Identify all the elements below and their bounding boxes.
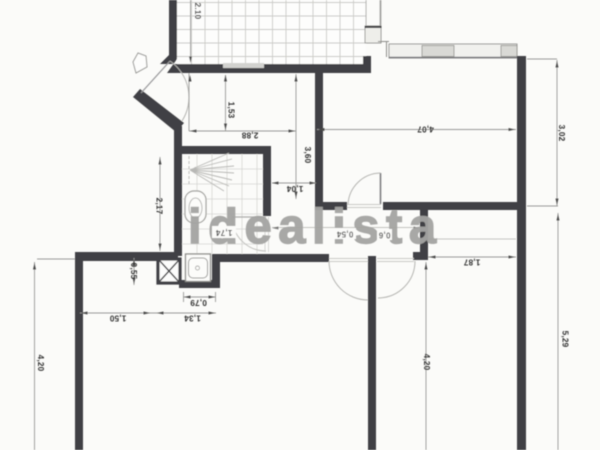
- svg-text:4,20: 4,20: [36, 355, 45, 372]
- svg-text:2,88: 2,88: [241, 131, 258, 140]
- svg-text:3,60: 3,60: [303, 147, 312, 164]
- svg-text:0,54: 0,54: [336, 230, 353, 239]
- svg-text:3,02: 3,02: [557, 125, 566, 142]
- svg-text:1,53: 1,53: [226, 102, 235, 119]
- svg-text:1,50: 1,50: [109, 314, 126, 323]
- svg-text:5,29: 5,29: [560, 331, 569, 348]
- svg-text:0,6: 0,6: [378, 231, 390, 240]
- svg-text:1,34: 1,34: [184, 314, 201, 323]
- svg-text:1,74: 1,74: [215, 228, 232, 237]
- svg-text:1,87: 1,87: [463, 258, 480, 267]
- svg-text:2,17: 2,17: [154, 198, 163, 215]
- svg-text:1,04: 1,04: [286, 184, 303, 193]
- svg-text:4,07: 4,07: [417, 125, 434, 134]
- svg-text:0,79: 0,79: [190, 298, 207, 307]
- svg-text:4,20: 4,20: [422, 354, 431, 371]
- svg-text:0,55: 0,55: [129, 263, 138, 280]
- svg-text:2.10: 2.10: [193, 3, 202, 20]
